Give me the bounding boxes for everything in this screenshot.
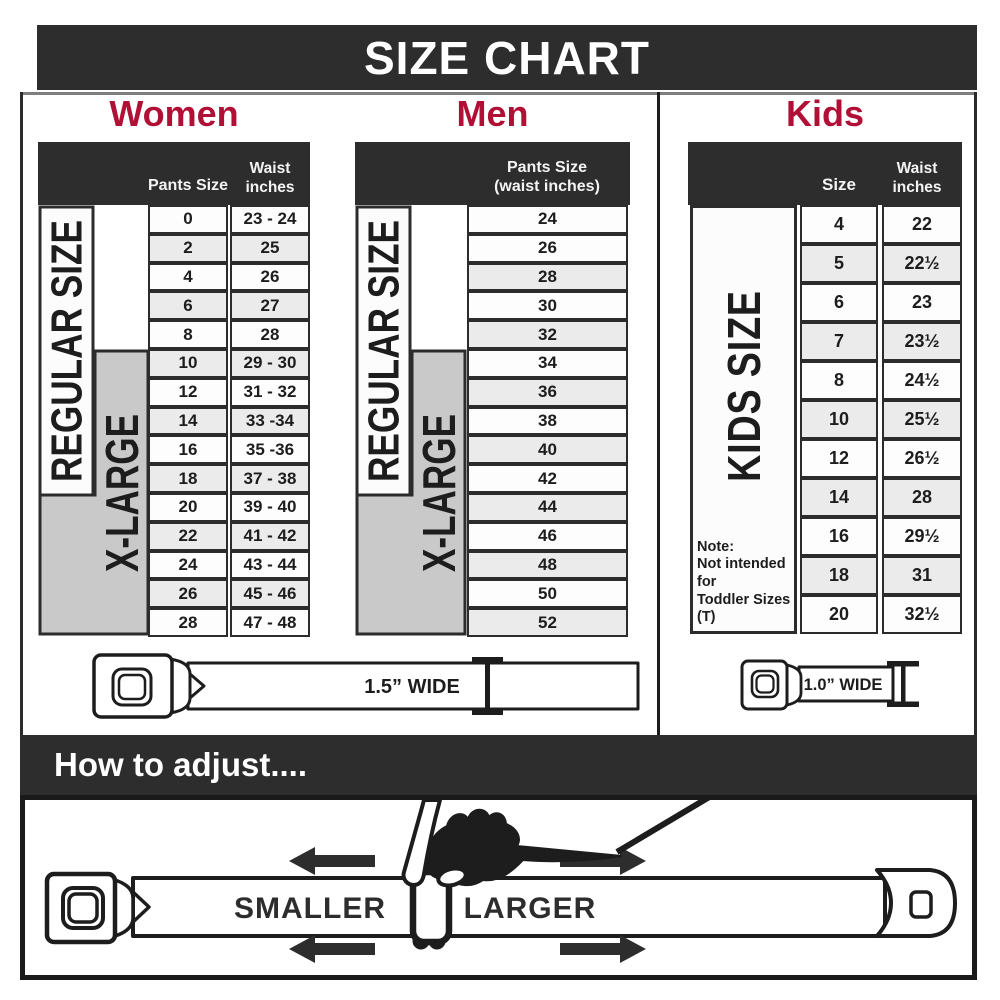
table-cell: 45 - 46 (230, 579, 310, 608)
table-cell: 48 (467, 551, 628, 580)
kids-buckle-flange (787, 665, 801, 705)
table-cell: 26 (230, 263, 310, 292)
table-cell: 50 (467, 579, 628, 608)
arrow-left-top-icon (289, 847, 375, 875)
table-cell: 28 (148, 608, 228, 637)
kids-note: Note: Not intended for Toddler Sizes (T) (697, 539, 794, 627)
women-section-title: Women (38, 94, 310, 134)
table-cell: 5 (800, 244, 878, 283)
table-cell: 14 (800, 478, 878, 517)
kids-belt-illustration: 1.0” WIDE (715, 653, 930, 717)
table-cell: 22 (882, 205, 962, 244)
panel-divider (657, 92, 660, 735)
kids-size-band: KIDS SIZE Note: Not intended for Toddler… (690, 205, 797, 634)
table-cell: 24 (467, 205, 628, 234)
table-cell: 44 (467, 493, 628, 522)
table-cell: 40 (467, 435, 628, 464)
table-cell: 0 (148, 205, 228, 234)
table-cell: 26 (148, 579, 228, 608)
table-cell: 43 - 44 (230, 551, 310, 580)
kids-table-header: Size Waist inches (688, 142, 962, 205)
table-cell: 35 -36 (230, 435, 310, 464)
kids-waist-header: Waist inches (872, 160, 962, 198)
table-cell: 23 (882, 283, 962, 322)
table-cell: 14 (148, 407, 228, 436)
table-cell: 18 (800, 556, 878, 595)
table-cell: 2 (148, 234, 228, 263)
table-cell: 25½ (882, 400, 962, 439)
table-cell: 28 (230, 320, 310, 349)
table-cell: 4 (148, 263, 228, 292)
panel-left-border (20, 92, 23, 735)
table-cell: 16 (148, 435, 228, 464)
table-cell: 20 (800, 595, 878, 634)
men-xlarge-label: X-LARGE (413, 414, 465, 572)
table-cell: 16 (800, 517, 878, 556)
page-title: SIZE CHART (364, 31, 650, 85)
table-cell: 22½ (882, 244, 962, 283)
adult-buckle-button-inner (119, 675, 145, 699)
table-cell: 32 (467, 320, 628, 349)
size-chart-page: SIZE CHART Women Men Kids Pants Size Wai… (0, 0, 1000, 1000)
kids-belt-width-label: 1.0” WIDE (804, 676, 883, 694)
arrow-left-bottom-icon (289, 935, 375, 963)
larger-label: LARGER (464, 892, 597, 925)
table-cell: 38 (467, 407, 628, 436)
pull-line (617, 800, 711, 852)
table-cell: 22 (148, 522, 228, 551)
table-cell: 20 (148, 493, 228, 522)
table-cell: 10 (148, 349, 228, 378)
table-cell: 26½ (882, 439, 962, 478)
table-cell: 42 (467, 464, 628, 493)
table-cell: 25 (230, 234, 310, 263)
women-size-group-labels: REGULAR SIZE X-LARGE (38, 205, 150, 637)
table-cell: 46 (467, 522, 628, 551)
table-cell: 24½ (882, 361, 962, 400)
men-table-header: Pants Size (waist inches) (355, 142, 630, 205)
table-cell: 6 (148, 291, 228, 320)
table-cell: 4 (800, 205, 878, 244)
table-cell: 24 (148, 551, 228, 580)
table-cell: 37 - 38 (230, 464, 310, 493)
adjust-buckle-flange (115, 880, 133, 936)
women-xlarge-label: X-LARGE (96, 414, 148, 572)
table-cell: 34 (467, 349, 628, 378)
kids-size-label: KIDS SIZE (717, 290, 771, 482)
table-cell: 10 (800, 400, 878, 439)
table-cell: 28 (467, 263, 628, 292)
smaller-label: SMALLER (234, 892, 386, 925)
adult-belt-width-label: 1.5” WIDE (364, 676, 460, 698)
kids-section-title: Kids (688, 94, 962, 134)
arrow-right-bottom-icon (560, 935, 646, 963)
women-waist-header: Waist inches (220, 160, 320, 198)
table-cell: 18 (148, 464, 228, 493)
kids-buckle-button-inner (757, 676, 774, 693)
table-cell: 6 (800, 283, 878, 322)
table-cell: 31 - 32 (230, 378, 310, 407)
table-cell: 23 - 24 (230, 205, 310, 234)
belt-tongue-slot (911, 892, 931, 917)
table-cell: 52 (467, 608, 628, 637)
table-cell: 28 (882, 478, 962, 517)
table-cell: 47 - 48 (230, 608, 310, 637)
table-cell: 33 -34 (230, 407, 310, 436)
panel-right-border (974, 92, 977, 735)
how-to-adjust-heading: How to adjust.... (54, 746, 307, 784)
men-table-grid: 242628303234363840424446485052 (467, 205, 628, 637)
table-cell: 31 (882, 556, 962, 595)
page-title-banner: SIZE CHART (37, 25, 977, 90)
table-cell: 39 - 40 (230, 493, 310, 522)
table-cell: 8 (148, 320, 228, 349)
men-section-title: Men (355, 94, 630, 134)
women-regular-size-label: REGULAR SIZE (43, 220, 92, 482)
adjustment-illustration: SMALLER LARGER (25, 800, 972, 975)
table-cell: 12 (148, 378, 228, 407)
table-cell: 27 (230, 291, 310, 320)
adjustment-illustration-box: SMALLER LARGER (20, 795, 977, 980)
table-cell: 29½ (882, 517, 962, 556)
men-pants-size-header: Pants Size (waist inches) (457, 158, 637, 197)
table-cell: 29 - 30 (230, 349, 310, 378)
men-regular-size-label: REGULAR SIZE (360, 220, 409, 482)
men-size-group-labels: REGULAR SIZE X-LARGE (355, 205, 467, 637)
table-cell: 7 (800, 322, 878, 361)
women-table-grid: 023 - 242254266278281029 - 301231 - 3214… (148, 205, 310, 637)
women-table-header: Pants Size Waist inches (38, 142, 310, 205)
adjust-buckle-button-inner (69, 894, 97, 922)
table-cell: 36 (467, 378, 628, 407)
table-cell: 41 - 42 (230, 522, 310, 551)
kids-table-grid: 422522½623723½824½1025½1226½14281629½183… (800, 205, 962, 634)
table-cell: 23½ (882, 322, 962, 361)
table-cell: 8 (800, 361, 878, 400)
how-to-adjust-bar: How to adjust.... (20, 735, 977, 795)
table-cell: 26 (467, 234, 628, 263)
table-cell: 30 (467, 291, 628, 320)
adult-belt-illustration: 1.5” WIDE (80, 650, 640, 722)
table-cell: 12 (800, 439, 878, 478)
table-cell: 32½ (882, 595, 962, 634)
